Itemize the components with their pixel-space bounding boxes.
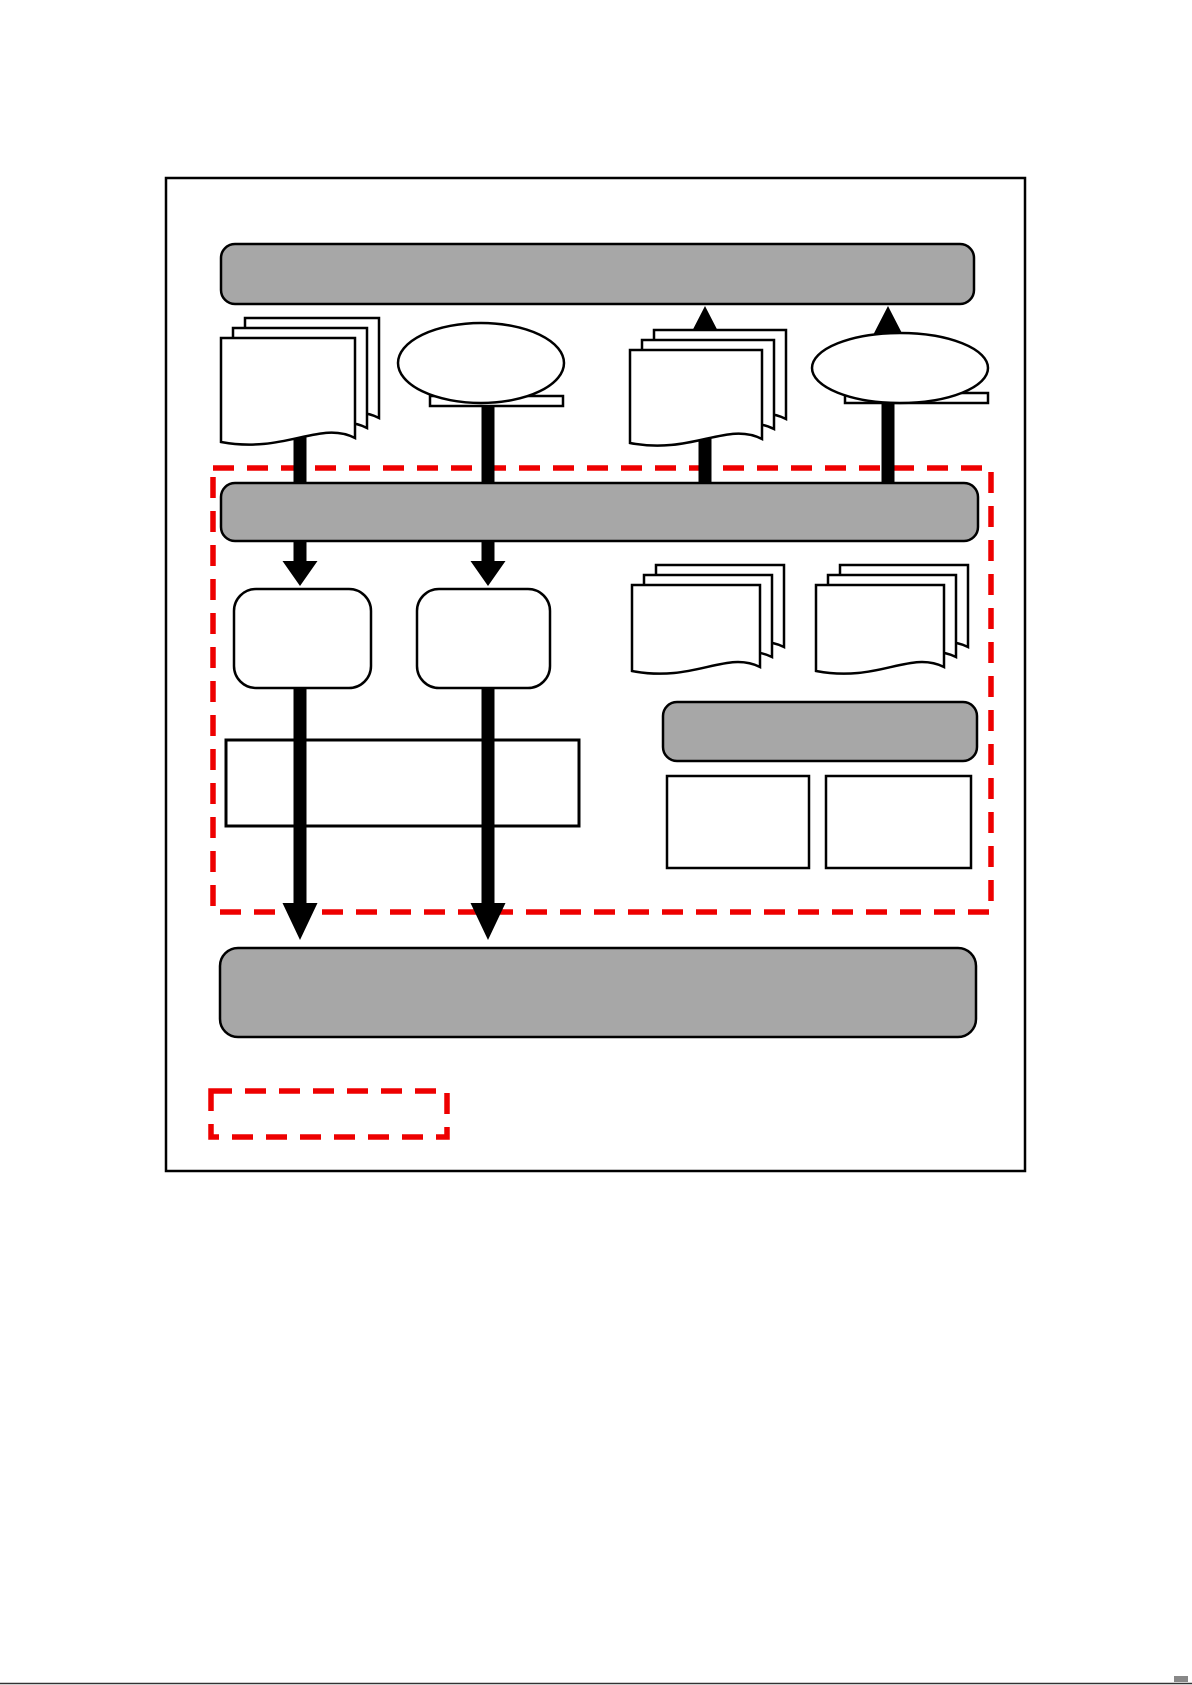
document-stack-1 [221,318,379,445]
flow-diagram [0,0,1192,1685]
document-page [630,350,762,446]
output-box-1 [667,776,809,868]
merge-box [226,740,579,826]
legend-dashed-box [211,1091,447,1137]
document-stack-3 [632,565,784,674]
down-arrow-1 [283,540,318,586]
bubble-oval [398,323,564,403]
sub-process-bar [663,702,977,761]
rounded-box-1 [234,589,371,688]
bubble-oval [812,333,988,403]
document-page [632,585,760,674]
page [0,0,1192,1685]
document-page [221,338,355,445]
document-stack-4 [816,565,968,674]
speech-bubble-1 [398,323,564,406]
down-arrow-2 [471,540,506,586]
document-stack-2 [630,330,786,446]
rounded-box-2 [417,589,550,688]
output-box-2 [826,776,971,868]
bottom-process-bar [220,948,976,1037]
middle-process-bar [221,483,978,541]
speech-bubble-2 [812,333,988,403]
document-page [816,585,944,674]
top-process-bar [221,244,974,304]
bottom-edge-nub [1174,1676,1188,1682]
